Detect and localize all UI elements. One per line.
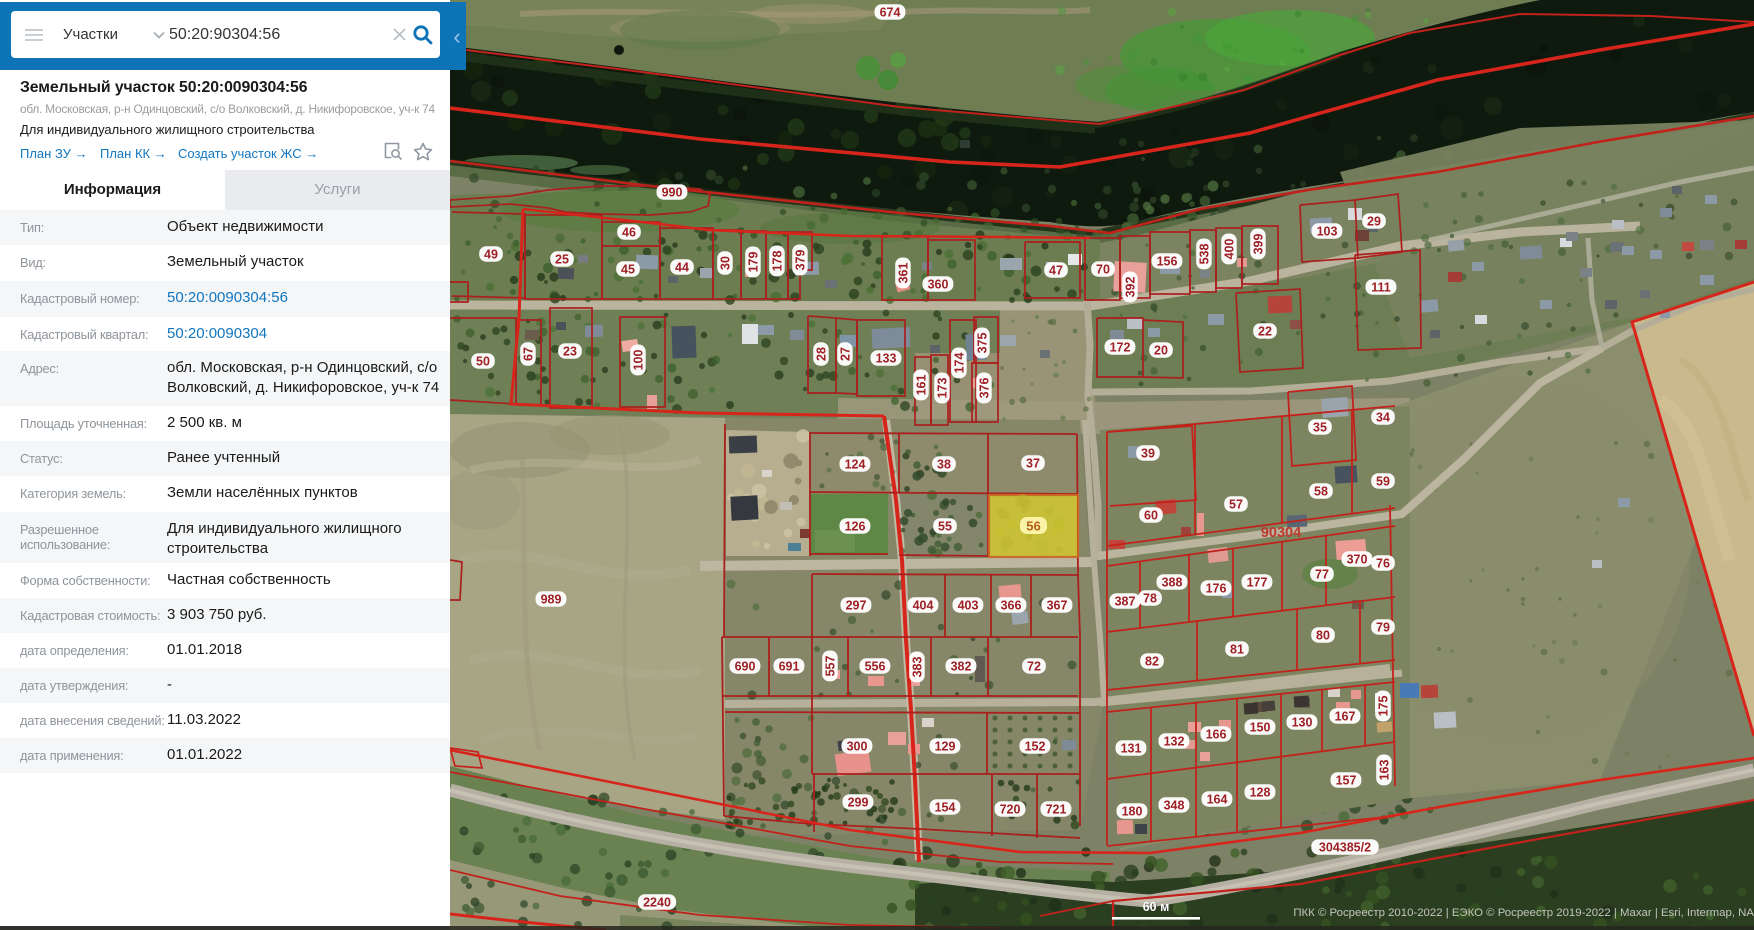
svg-text:174: 174 bbox=[952, 353, 966, 374]
svg-text:177: 177 bbox=[1247, 575, 1268, 589]
svg-text:180: 180 bbox=[1122, 804, 1143, 818]
svg-text:156: 156 bbox=[1157, 254, 1178, 268]
svg-text:376: 376 bbox=[977, 378, 991, 399]
svg-text:387: 387 bbox=[1115, 594, 1136, 608]
svg-text:131: 131 bbox=[1121, 741, 1142, 755]
svg-text:77: 77 bbox=[1315, 567, 1329, 581]
svg-text:176: 176 bbox=[1206, 581, 1227, 595]
svg-text:990: 990 bbox=[662, 185, 683, 199]
svg-text:49: 49 bbox=[484, 247, 498, 261]
svg-text:80: 80 bbox=[1316, 628, 1330, 642]
svg-text:690: 690 bbox=[735, 659, 756, 673]
svg-text:299: 299 bbox=[848, 795, 869, 809]
svg-text:154: 154 bbox=[935, 800, 956, 814]
svg-text:111: 111 bbox=[1371, 280, 1391, 294]
svg-text:50: 50 bbox=[476, 354, 490, 368]
svg-text:ПКК © Росреестр 2010-2022 | ЕЭ: ПКК © Росреестр 2010-2022 | ЕЭКО © Росре… bbox=[1293, 907, 1754, 919]
svg-text:164: 164 bbox=[1207, 792, 1228, 806]
svg-text:46: 46 bbox=[622, 225, 636, 239]
svg-text:30: 30 bbox=[718, 256, 732, 270]
svg-text:56: 56 bbox=[1026, 519, 1040, 534]
svg-text:81: 81 bbox=[1230, 642, 1244, 656]
svg-text:35: 35 bbox=[1313, 420, 1327, 434]
svg-text:370: 370 bbox=[1347, 552, 1368, 566]
svg-text:38: 38 bbox=[937, 457, 951, 471]
svg-text:47: 47 bbox=[1049, 263, 1063, 277]
svg-text:2240: 2240 bbox=[643, 895, 671, 909]
svg-text:360: 360 bbox=[928, 277, 949, 291]
svg-text:163: 163 bbox=[1377, 760, 1391, 781]
svg-text:167: 167 bbox=[1335, 709, 1356, 723]
svg-text:55: 55 bbox=[938, 519, 952, 533]
svg-text:23: 23 bbox=[563, 344, 577, 358]
svg-text:404: 404 bbox=[913, 598, 934, 612]
svg-text:383: 383 bbox=[910, 657, 924, 678]
svg-text:60: 60 bbox=[1144, 508, 1158, 522]
svg-text:28: 28 bbox=[814, 347, 828, 361]
svg-text:297: 297 bbox=[846, 598, 867, 612]
svg-text:674: 674 bbox=[880, 5, 901, 19]
svg-text:178: 178 bbox=[770, 251, 784, 272]
svg-text:173: 173 bbox=[935, 378, 949, 399]
svg-text:129: 129 bbox=[935, 739, 956, 753]
svg-text:367: 367 bbox=[1047, 598, 1068, 612]
svg-text:403: 403 bbox=[958, 598, 979, 612]
svg-text:76: 76 bbox=[1376, 556, 1390, 570]
svg-text:37: 37 bbox=[1026, 456, 1040, 470]
svg-text:366: 366 bbox=[1001, 598, 1022, 612]
svg-text:179: 179 bbox=[746, 252, 760, 273]
svg-text:133: 133 bbox=[876, 351, 897, 365]
svg-text:45: 45 bbox=[621, 262, 635, 276]
svg-text:44: 44 bbox=[675, 260, 689, 274]
svg-text:39: 39 bbox=[1141, 446, 1155, 460]
svg-text:399: 399 bbox=[1251, 234, 1265, 255]
svg-text:58: 58 bbox=[1314, 484, 1328, 498]
svg-text:90304: 90304 bbox=[1261, 525, 1301, 541]
svg-text:348: 348 bbox=[1164, 798, 1185, 812]
svg-text:691: 691 bbox=[779, 659, 800, 673]
svg-text:172: 172 bbox=[1110, 340, 1131, 354]
svg-text:72: 72 bbox=[1027, 659, 1041, 673]
svg-text:34: 34 bbox=[1376, 410, 1390, 424]
svg-text:989: 989 bbox=[541, 592, 562, 606]
svg-text:130: 130 bbox=[1292, 715, 1313, 729]
svg-text:175: 175 bbox=[1376, 696, 1390, 717]
svg-text:27: 27 bbox=[838, 347, 852, 361]
svg-text:78: 78 bbox=[1143, 591, 1157, 605]
svg-text:60 м: 60 м bbox=[1143, 900, 1170, 914]
svg-text:126: 126 bbox=[845, 519, 866, 533]
svg-text:124: 124 bbox=[845, 457, 866, 471]
svg-text:379: 379 bbox=[793, 250, 807, 271]
svg-text:132: 132 bbox=[1164, 734, 1185, 748]
svg-text:375: 375 bbox=[975, 333, 989, 354]
svg-text:556: 556 bbox=[865, 659, 886, 673]
svg-text:150: 150 bbox=[1250, 720, 1271, 734]
svg-text:721: 721 bbox=[1046, 802, 1067, 816]
svg-text:59: 59 bbox=[1376, 474, 1390, 488]
svg-text:538: 538 bbox=[1197, 244, 1211, 265]
svg-text:388: 388 bbox=[1162, 575, 1183, 589]
svg-text:400: 400 bbox=[1222, 239, 1236, 260]
svg-text:29: 29 bbox=[1367, 214, 1381, 228]
svg-text:361: 361 bbox=[896, 263, 910, 284]
svg-text:720: 720 bbox=[1000, 802, 1021, 816]
svg-text:25: 25 bbox=[555, 252, 569, 266]
svg-text:304385/2: 304385/2 bbox=[1319, 840, 1371, 854]
svg-text:20: 20 bbox=[1154, 343, 1168, 357]
svg-text:67: 67 bbox=[521, 347, 535, 361]
svg-text:166: 166 bbox=[1206, 727, 1227, 741]
svg-text:100: 100 bbox=[631, 350, 645, 371]
svg-text:70: 70 bbox=[1096, 262, 1110, 276]
svg-text:152: 152 bbox=[1025, 739, 1046, 753]
svg-text:300: 300 bbox=[847, 739, 868, 753]
svg-text:79: 79 bbox=[1376, 620, 1390, 634]
svg-text:557: 557 bbox=[823, 656, 837, 677]
svg-text:128: 128 bbox=[1250, 785, 1271, 799]
svg-text:57: 57 bbox=[1229, 497, 1243, 511]
svg-text:161: 161 bbox=[914, 375, 928, 396]
svg-text:157: 157 bbox=[1336, 773, 1357, 787]
svg-text:22: 22 bbox=[1258, 324, 1272, 338]
svg-text:103: 103 bbox=[1317, 224, 1338, 238]
svg-text:82: 82 bbox=[1145, 654, 1159, 668]
svg-text:392: 392 bbox=[1123, 277, 1137, 298]
svg-text:382: 382 bbox=[951, 659, 972, 673]
